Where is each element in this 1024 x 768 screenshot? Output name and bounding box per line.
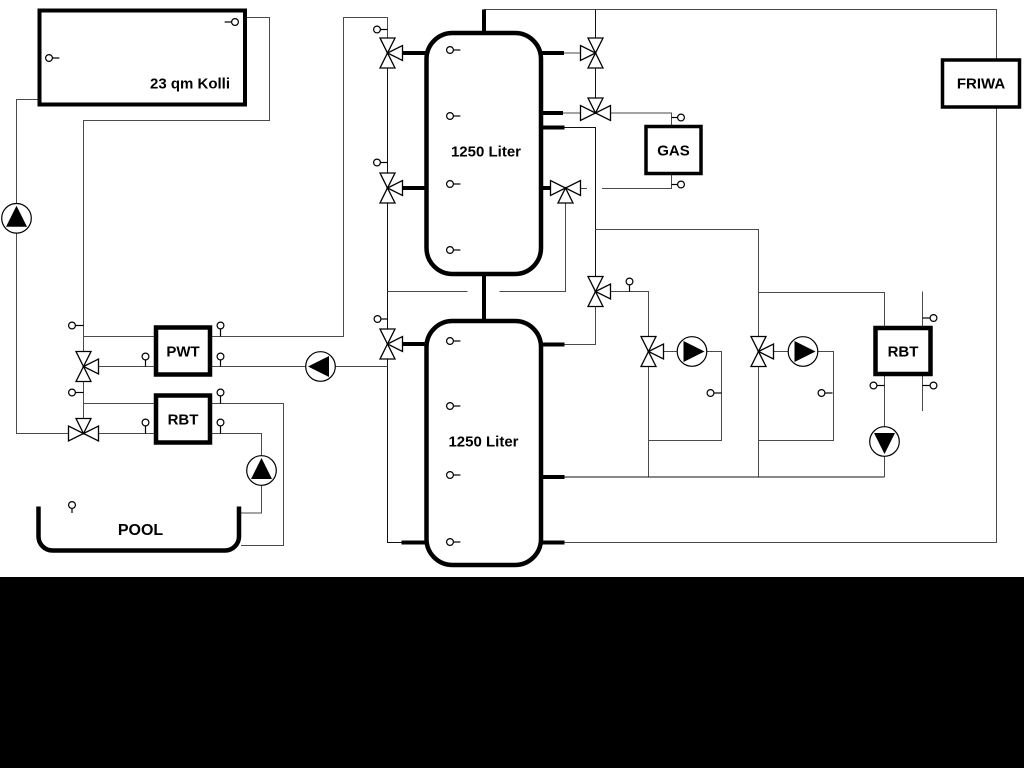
svg-text:GAS: GAS (657, 143, 690, 160)
svg-text:RBT: RBT (168, 412, 199, 429)
svg-text:FRIWA: FRIWA (957, 76, 1005, 93)
svg-text:23 qm Kolli: 23 qm Kolli (150, 76, 230, 93)
svg-text:POOL: POOL (118, 522, 164, 539)
svg-text:1250 Liter: 1250 Liter (451, 144, 521, 161)
svg-text:PWT: PWT (166, 344, 199, 361)
svg-text:RBT: RBT (888, 344, 919, 361)
svg-text:1250 Liter: 1250 Liter (448, 434, 518, 451)
